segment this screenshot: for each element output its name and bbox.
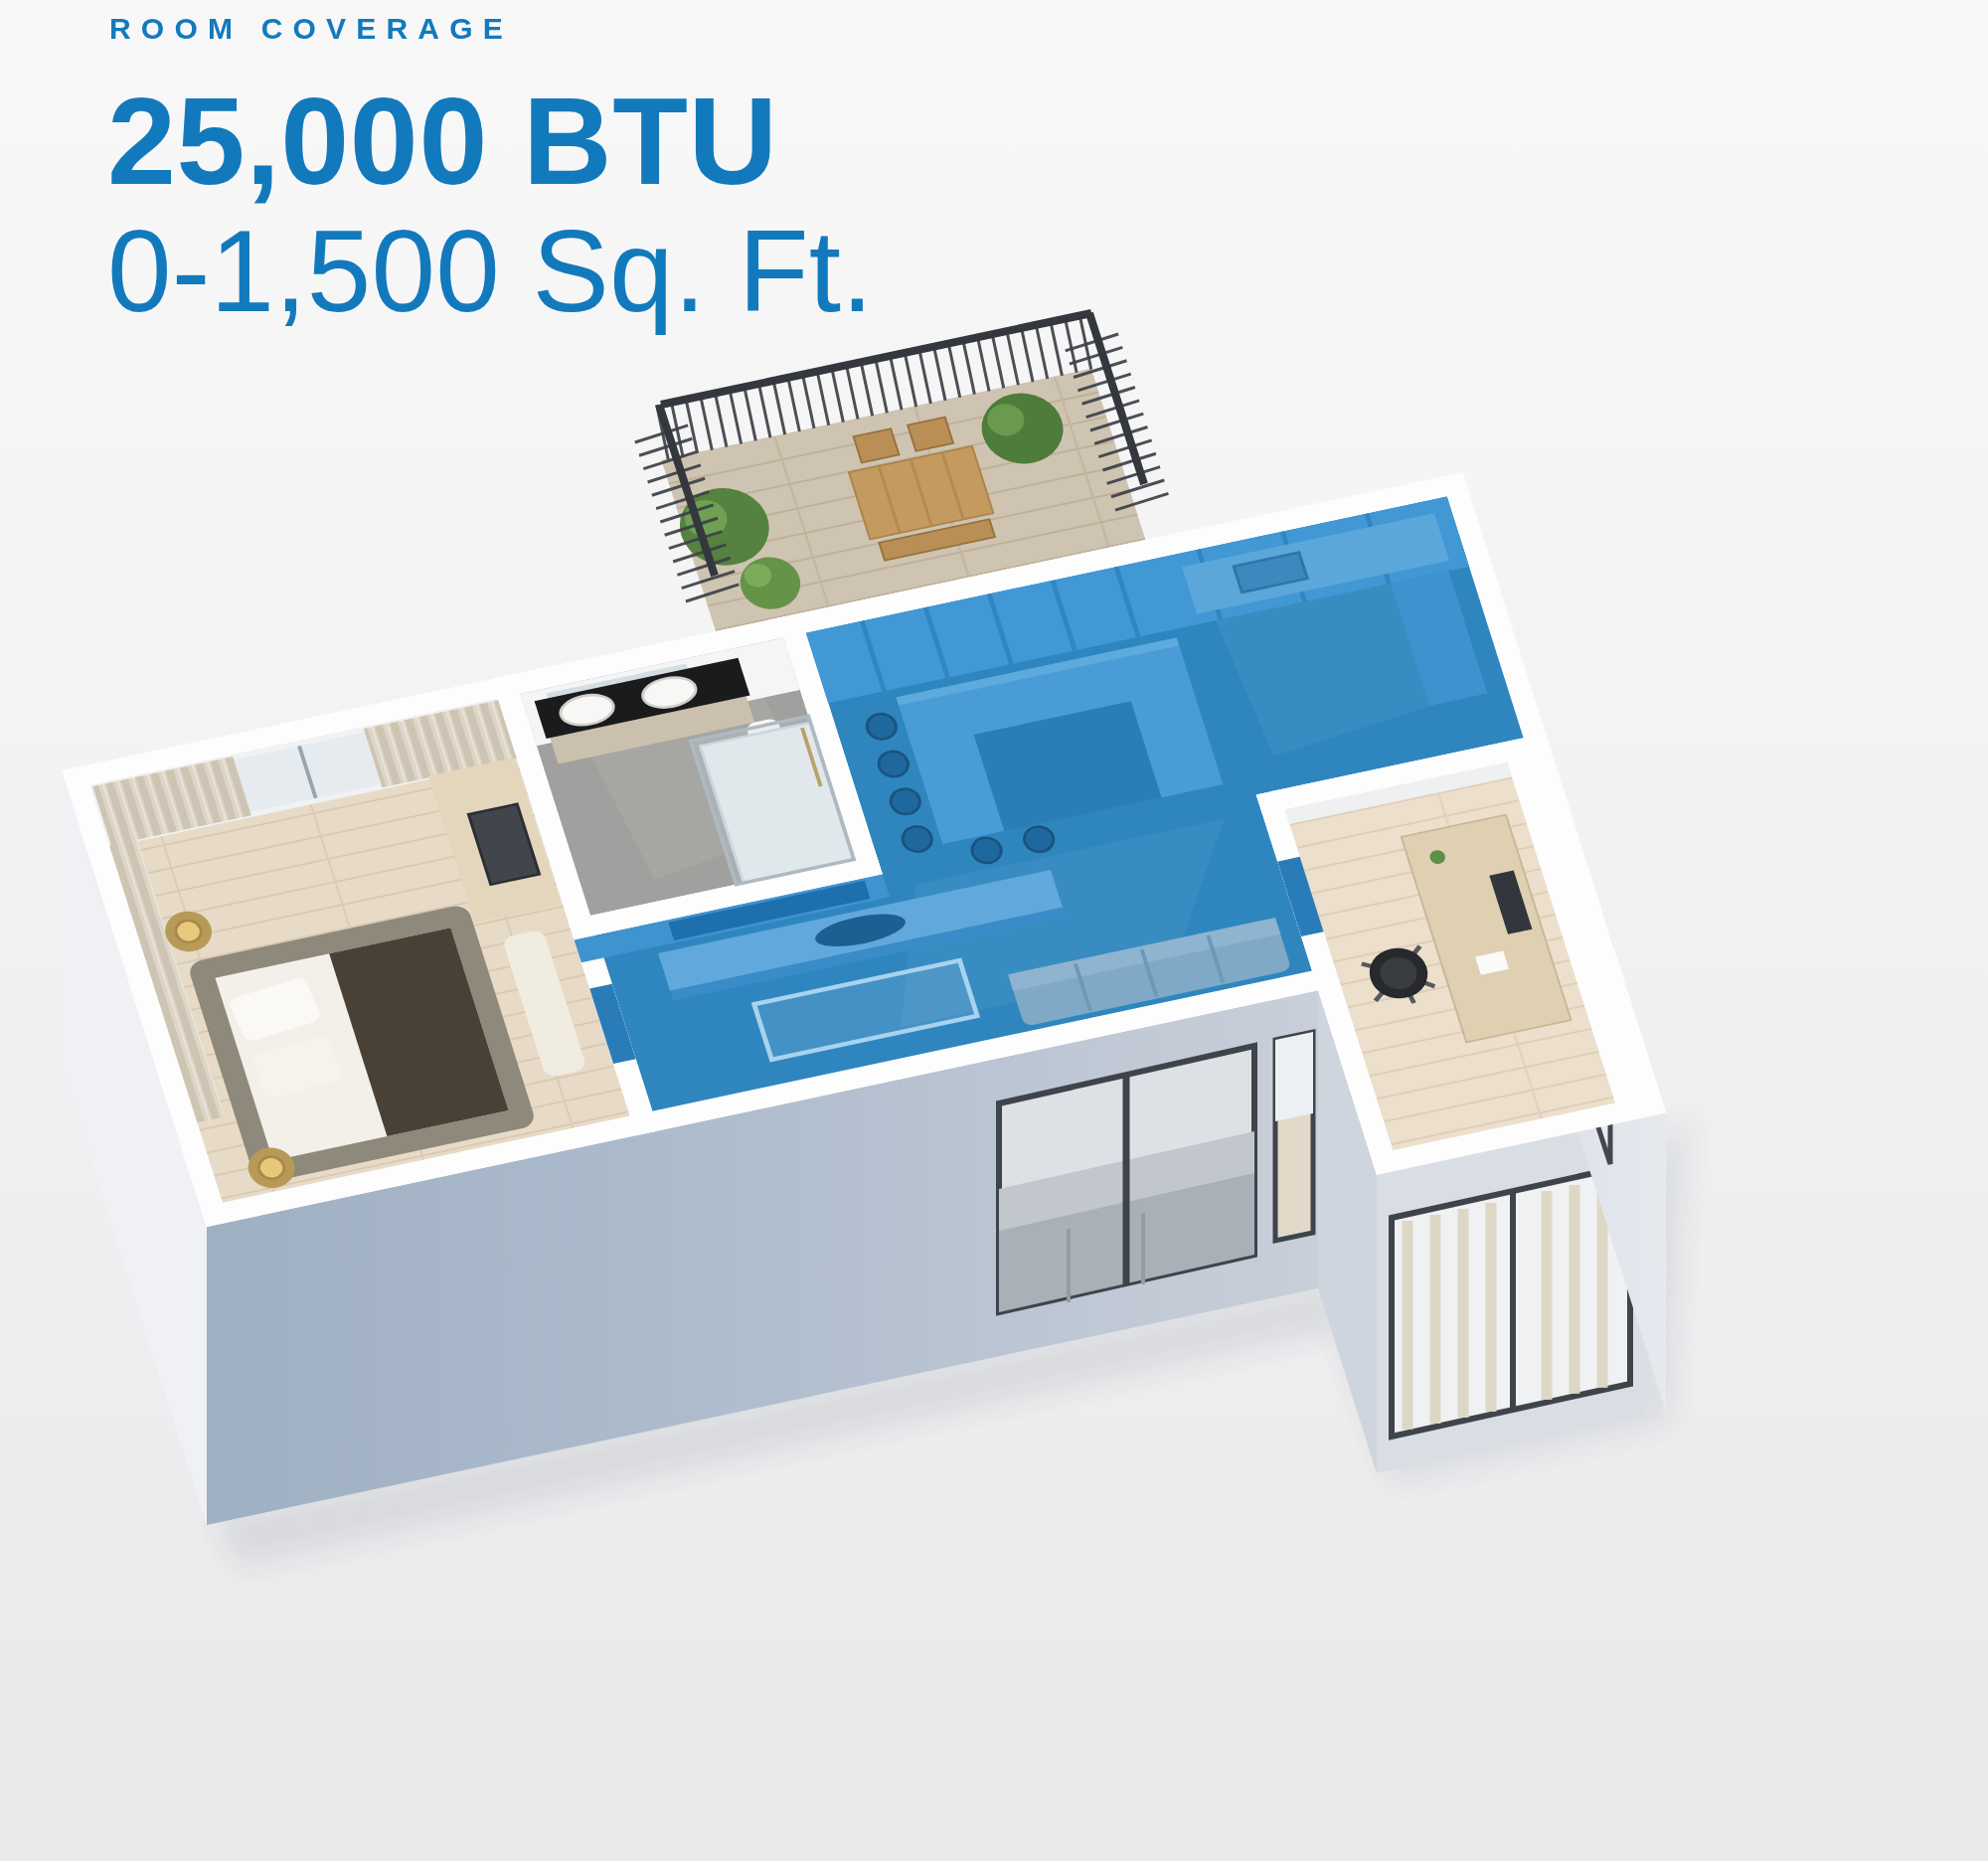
btu-rating: 25,000 BTU: [107, 80, 874, 203]
page: { "header": { "eyebrow": "ROOM COVERAGE"…: [0, 0, 1988, 1861]
header: ROOM COVERAGE 25,000 BTU 0-1,500 Sq. Ft.: [107, 12, 874, 333]
eyebrow-label: ROOM COVERAGE: [109, 12, 874, 46]
hallway-glass-door: [1275, 1032, 1313, 1241]
coverage-range: 0-1,500 Sq. Ft.: [107, 211, 874, 333]
